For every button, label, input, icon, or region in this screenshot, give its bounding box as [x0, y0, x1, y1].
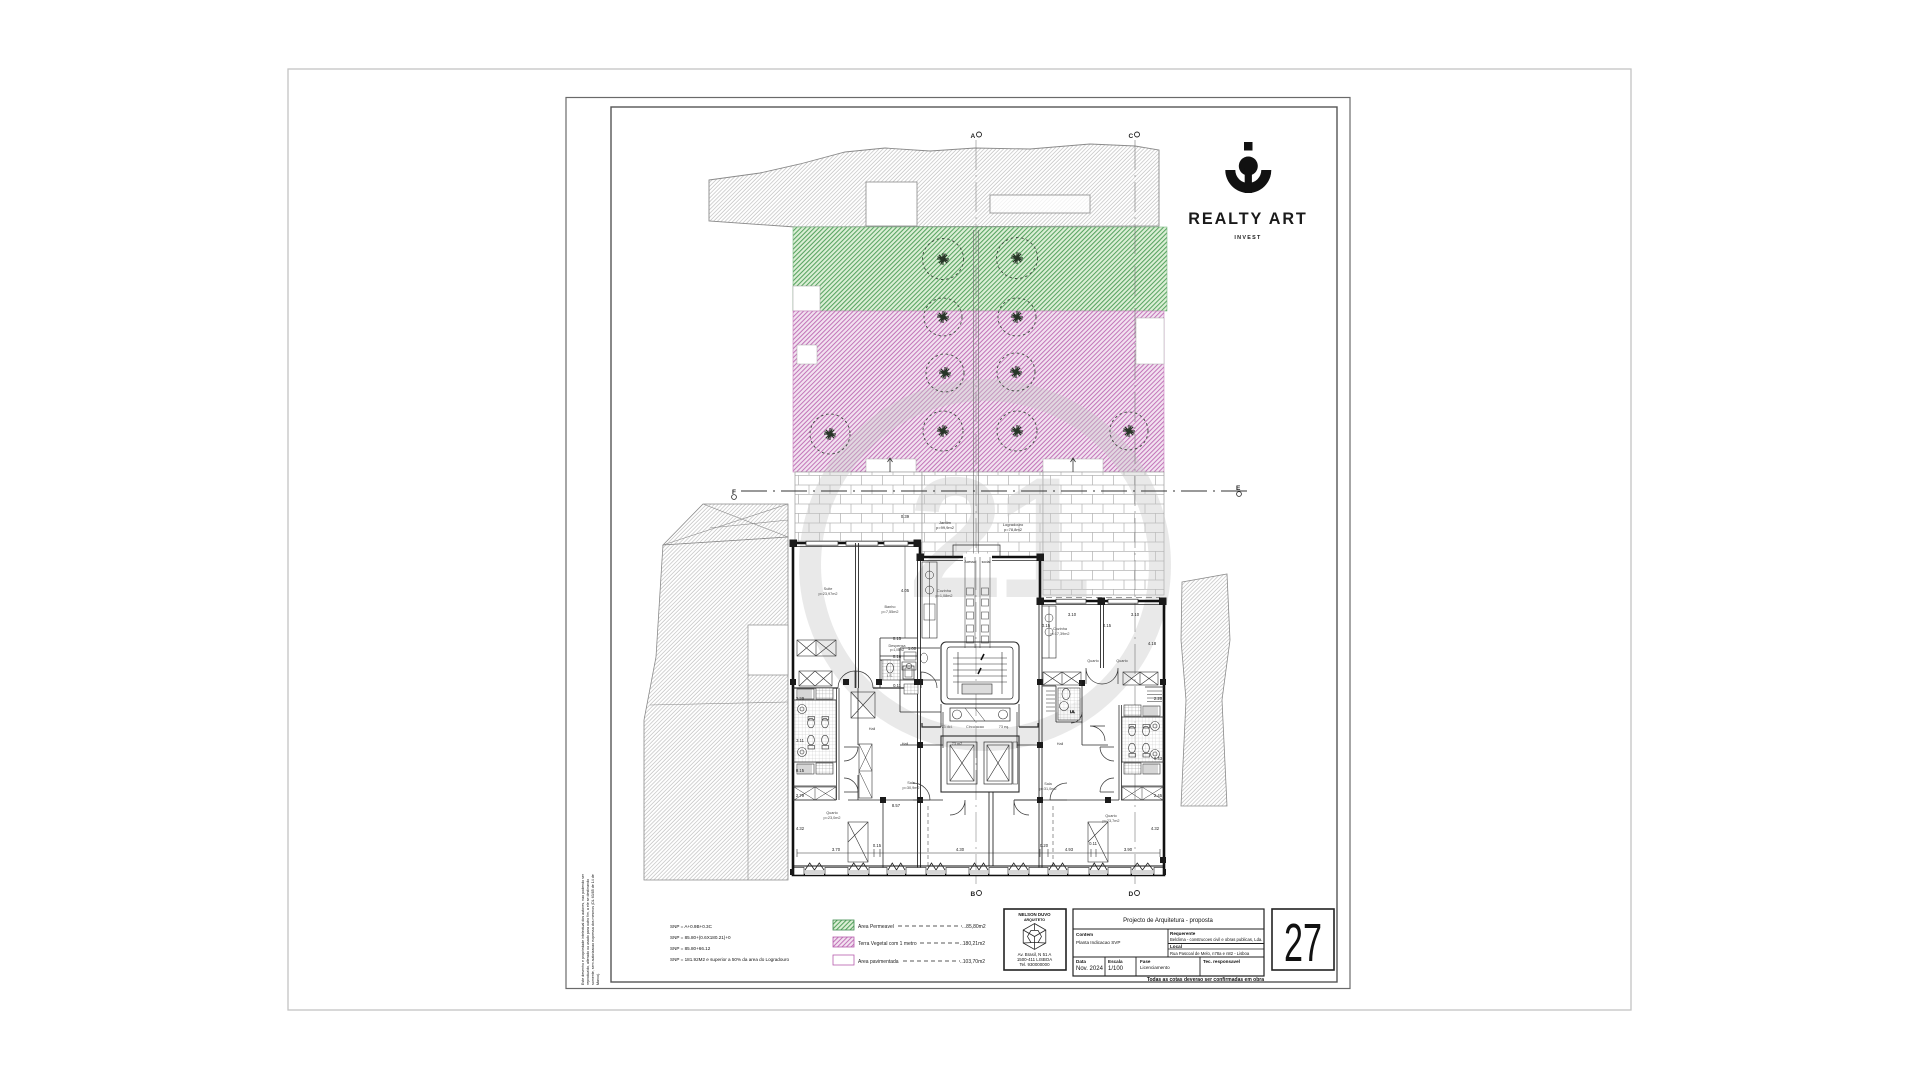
- svg-text:4.18: 4.18: [1148, 641, 1157, 646]
- svg-text:Hall: Hall: [1057, 742, 1064, 746]
- svg-text:Hall: Hall: [902, 742, 909, 746]
- svg-text:Local: Local: [1170, 944, 1182, 949]
- svg-text:...85,80m2: ...85,80m2: [962, 924, 986, 930]
- svg-text:Acesso: Acesso: [964, 560, 975, 564]
- svg-text:reproduzido, alterado ou usado: reproduzido, alterado ou usado para outr…: [586, 879, 590, 985]
- svg-text:Banho: Banho: [885, 605, 896, 609]
- svg-text:SNP = 181.92M2 e superior a: SNP = 181.92M2 e superior a 50% da area …: [670, 957, 789, 962]
- svg-text:0.15: 0.15: [1103, 623, 1112, 628]
- svg-text:Licenciamento: Licenciamento: [1140, 965, 1170, 970]
- svg-text:Hall: Hall: [869, 727, 876, 731]
- svg-text:Projecto de Arquitetura - prop: Projecto de Arquitetura - proposta: [1123, 918, 1213, 924]
- svg-text:p=23,0m2: p=23,0m2: [824, 816, 841, 820]
- svg-text:0.11: 0.11: [1089, 841, 1098, 846]
- svg-text:SNP = A+0.9B+0.3C: SNP = A+0.9B+0.3C: [670, 924, 713, 929]
- svg-text:p=1,05m2: p=1,05m2: [890, 648, 904, 652]
- svg-text:4.32: 4.32: [796, 826, 805, 831]
- svg-text:Fase: Fase: [1140, 959, 1151, 964]
- svg-text:2.45: 2.45: [1154, 793, 1163, 798]
- svg-text:p=1,08m2: p=1,08m2: [936, 594, 953, 598]
- svg-text:Rua Pascoal de Melo, n78a e n8: Rua Pascoal de Melo, n78a e n82 - Lisboa: [1170, 951, 1250, 956]
- svg-text:D: D: [1129, 891, 1134, 898]
- svg-text:Suite: Suite: [824, 587, 833, 591]
- svg-text:Nov. 2024: Nov. 2024: [1076, 966, 1104, 972]
- svg-text:Quarto: Quarto: [1116, 659, 1128, 663]
- svg-text:social: social: [982, 560, 991, 564]
- svg-text:Cozinha: Cozinha: [1053, 627, 1068, 631]
- svg-text:Tec. responsavel: Tec. responsavel: [1203, 959, 1240, 964]
- svg-text:8.57: 8.57: [892, 803, 901, 808]
- svg-text:1/100: 1/100: [1108, 966, 1124, 972]
- svg-text:INVEST: INVEST: [1234, 235, 1261, 241]
- svg-text:Belclima - construcoes civil e: Belclima - construcoes civil e obras pub…: [1170, 937, 1262, 942]
- svg-text:Quarto: Quarto: [826, 811, 838, 815]
- svg-text:somente, sem autorizacao expre: somente, sem autorizacao expressa dos me…: [591, 874, 595, 985]
- svg-text:I.S.: I.S.: [1070, 710, 1075, 714]
- svg-text:Tel. 930000000: Tel. 930000000: [1019, 962, 1050, 967]
- svg-text:0.15: 0.15: [1042, 623, 1051, 628]
- svg-text:4.30: 4.30: [956, 847, 965, 852]
- svg-text:Area Permeavel: Area Permeavel: [858, 924, 894, 930]
- svg-text:Quarto: Quarto: [1105, 814, 1117, 818]
- svg-text:4.32: 4.32: [1151, 826, 1160, 831]
- svg-text:Data: Data: [1076, 959, 1086, 964]
- svg-text:2.20: 2.20: [1154, 696, 1163, 701]
- svg-text:..103,70m2: ..103,70m2: [960, 959, 985, 965]
- svg-text:A: A: [971, 133, 976, 140]
- svg-text:0.15: 0.15: [796, 768, 805, 773]
- svg-text:Terra Vegetal com 1 metro: Terra Vegetal com 1 metro: [858, 941, 917, 947]
- svg-text:3.90: 3.90: [1124, 847, 1133, 852]
- svg-text:E: E: [1236, 485, 1241, 492]
- svg-text:p=23,7m2: p=23,7m2: [1103, 819, 1120, 823]
- svg-text:3.70: 3.70: [832, 847, 841, 852]
- svg-text:73 m2: 73 m2: [952, 742, 963, 746]
- svg-text:I.S.: I.S.: [887, 674, 893, 678]
- svg-text:Quarto: Quarto: [1087, 659, 1099, 663]
- svg-text:Sala: Sala: [907, 781, 915, 785]
- svg-text:0.43: 0.43: [1154, 756, 1163, 761]
- svg-text:p=17,39m2: p=17,39m2: [1050, 632, 1069, 636]
- svg-text:73 eq.: 73 eq.: [999, 725, 1010, 729]
- svg-text:4.93: 4.93: [1065, 847, 1074, 852]
- svg-text:Planta Indicacao SVP: Planta Indicacao SVP: [1076, 940, 1120, 945]
- svg-text:Contem: Contem: [1076, 932, 1093, 937]
- svg-text:0.16: 0.16: [893, 654, 902, 659]
- svg-text:B: B: [971, 891, 976, 898]
- svg-text:0.11: 0.11: [893, 683, 902, 688]
- svg-text:3.10: 3.10: [1068, 612, 1077, 617]
- svg-text:p=7,55m2: p=7,55m2: [882, 610, 899, 614]
- svg-text:p=31,0m2: p=31,0m2: [1040, 787, 1057, 791]
- svg-text:Escala: Escala: [1108, 959, 1123, 964]
- svg-text:0.39: 0.39: [901, 514, 910, 519]
- svg-text:Marco).: Marco).: [596, 973, 600, 985]
- svg-text:Requerente: Requerente: [1170, 931, 1196, 936]
- svg-text:27: 27: [1284, 913, 1322, 973]
- svg-text:0.15: 0.15: [893, 636, 902, 641]
- svg-text:3.11: 3.11: [796, 738, 805, 743]
- svg-text:2.79: 2.79: [796, 793, 805, 798]
- svg-text:p=23,97m2: p=23,97m2: [818, 592, 837, 596]
- svg-text:Este desenho e propriedade int: Este desenho e propriedade intelectual d…: [581, 873, 585, 985]
- svg-text:2.20: 2.20: [796, 696, 805, 701]
- svg-text:0.15: 0.15: [873, 843, 882, 848]
- svg-text:REALTY ART: REALTY ART: [1188, 210, 1307, 228]
- svg-text:Todas as cotas deverao ser con: Todas as cotas deverao ser confirmadas e…: [1147, 977, 1264, 983]
- svg-text:73 dcl.: 73 dcl.: [941, 725, 952, 729]
- svg-text:NELSON DUVO: NELSON DUVO: [1018, 912, 1051, 917]
- svg-text:Cozinha: Cozinha: [937, 589, 952, 593]
- svg-text:1.00: 1.00: [908, 646, 917, 651]
- svg-text:..180,21m2: ..180,21m2: [960, 941, 985, 947]
- svg-text:0.20: 0.20: [1040, 843, 1049, 848]
- svg-text:C: C: [1129, 133, 1134, 140]
- svg-text:Area pavimentada: Area pavimentada: [858, 959, 899, 965]
- svg-text:4.05: 4.05: [901, 588, 910, 593]
- svg-text:ARQUITETO: ARQUITETO: [1024, 918, 1045, 922]
- svg-text:SNP = 85.80+(0.6X180.21)+0: SNP = 85.80+(0.6X180.21)+0: [670, 935, 731, 940]
- svg-text:Sala: Sala: [1044, 782, 1052, 786]
- svg-text:3.10: 3.10: [1131, 612, 1140, 617]
- svg-text:p=30,9m2: p=30,9m2: [903, 786, 920, 790]
- svg-text:Circulacao: Circulacao: [966, 725, 984, 729]
- svg-text:SNP = 85.80+66.12: SNP = 85.80+66.12: [670, 946, 711, 951]
